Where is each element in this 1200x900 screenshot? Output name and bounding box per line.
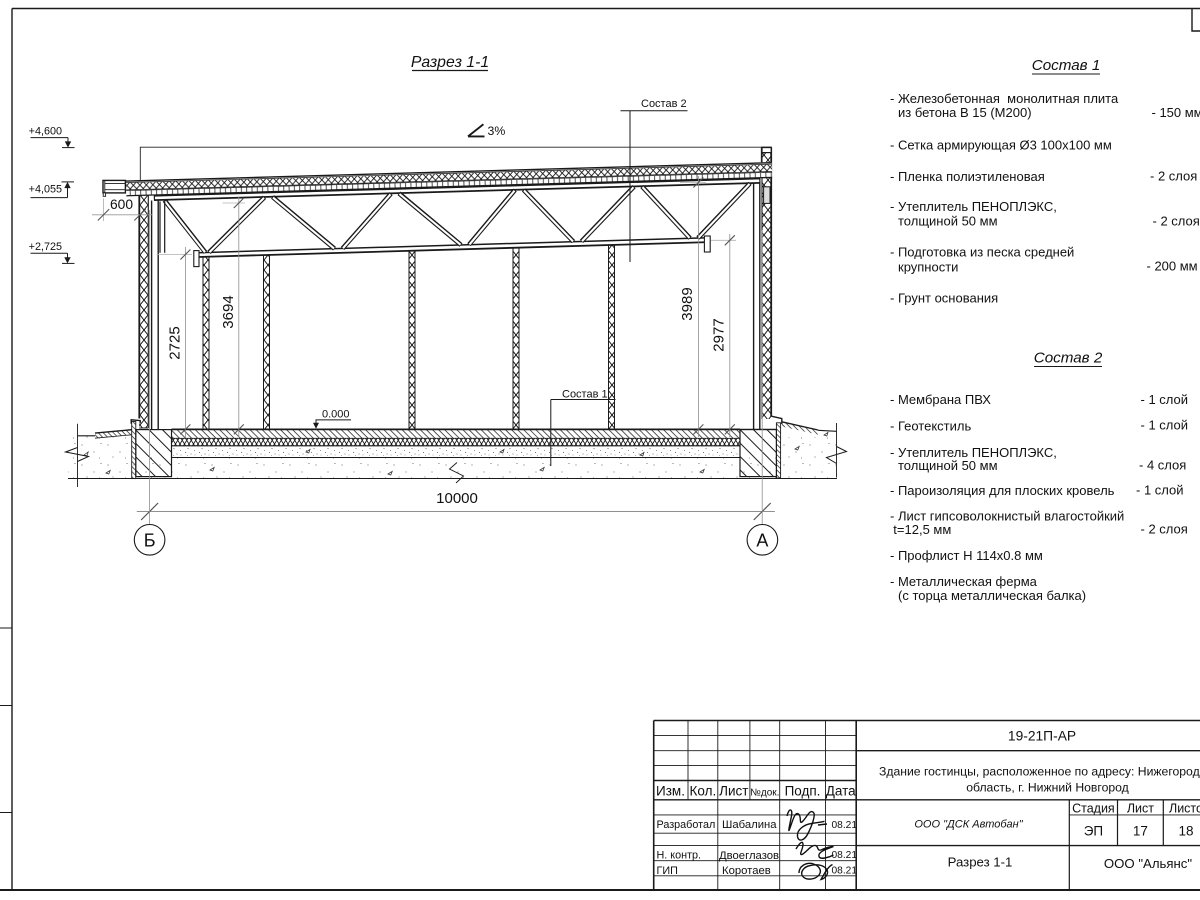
svg-text:t=12,5 мм: t=12,5 мм xyxy=(893,522,951,537)
svg-text:3694: 3694 xyxy=(220,295,237,328)
svg-text:- Железобетонная монолитная п: - Железобетонная монолитная плита xyxy=(890,91,1119,106)
svg-text:- 4 слоя: - 4 слоя xyxy=(1139,458,1186,473)
svg-text:0.000: 0.000 xyxy=(322,409,350,421)
svg-text:19-21П-АР: 19-21П-АР xyxy=(1008,729,1076,744)
svg-text:Состав 1: Состав 1 xyxy=(1032,57,1101,74)
svg-text:08.21: 08.21 xyxy=(832,820,858,831)
svg-text:- Подготовка из песка средней: - Подготовка из песка средней xyxy=(890,245,1074,260)
svg-text:Состав 1: Состав 1 xyxy=(562,388,608,400)
svg-text:ЭП: ЭП xyxy=(1084,824,1103,839)
svg-text:- Утеплитель ПЕНОПЛЭКС,: - Утеплитель ПЕНОПЛЭКС, xyxy=(890,199,1057,214)
svg-text:- 2 слоя: - 2 слоя xyxy=(1153,213,1200,228)
svg-text:- Сетка армирующая Ø3 100х100: - Сетка армирующая Ø3 100х100 мм xyxy=(890,138,1112,153)
svg-text:Разработал: Разработал xyxy=(657,819,716,831)
svg-text:№док.: №док. xyxy=(750,788,779,799)
svg-text:+2,725: +2,725 xyxy=(29,241,62,253)
svg-text:Состав 2: Состав 2 xyxy=(1034,350,1103,367)
svg-text:Листов: Листов xyxy=(1169,801,1200,815)
svg-text:Н. контр.: Н. контр. xyxy=(657,849,702,861)
svg-text:10000: 10000 xyxy=(436,490,478,507)
svg-text:- Пленка полиэтиленовая: - Пленка полиэтиленовая xyxy=(890,169,1045,184)
svg-text:18: 18 xyxy=(1178,824,1193,839)
svg-text:- Мембрана ПВХ: - Мембрана ПВХ xyxy=(890,392,991,407)
svg-text:+4,600: +4,600 xyxy=(29,126,62,138)
svg-text:крупности: крупности xyxy=(898,260,958,275)
svg-text:2977: 2977 xyxy=(711,318,728,351)
svg-text:Изм.: Изм. xyxy=(656,784,685,799)
svg-text:- 1 слой: - 1 слой xyxy=(1141,418,1189,433)
svg-text:Разрез 1-1: Разрез 1-1 xyxy=(948,855,1013,870)
svg-text:(с торца металлическая балка): (с торца металлическая балка) xyxy=(898,588,1086,603)
svg-text:3989: 3989 xyxy=(679,287,696,320)
svg-text:17: 17 xyxy=(1133,824,1148,839)
svg-text:область, г. Нижний Новгород: область, г. Нижний Новгород xyxy=(966,780,1129,794)
svg-text:Лист: Лист xyxy=(1127,801,1154,815)
svg-text:Коротаев: Коротаев xyxy=(722,865,771,877)
svg-text:Здание гостинцы, расположенное: Здание гостинцы, расположенное по адресу… xyxy=(879,764,1200,778)
svg-text:А: А xyxy=(756,531,768,551)
svg-text:3%: 3% xyxy=(488,124,506,138)
svg-text:Шабалина: Шабалина xyxy=(722,819,777,831)
svg-text:Лист: Лист xyxy=(719,784,748,799)
svg-text:- 2 слоя: - 2 слоя xyxy=(1150,169,1197,184)
svg-text:Состав 2: Состав 2 xyxy=(641,98,687,110)
svg-text:Б: Б xyxy=(144,531,156,551)
svg-text:+4,055: +4,055 xyxy=(29,184,62,196)
svg-text:из бетона В 15 (М200): из бетона В 15 (М200) xyxy=(898,105,1032,120)
svg-text:- 200 мм: - 200 мм xyxy=(1147,259,1198,274)
svg-text:ГИП: ГИП xyxy=(657,865,678,877)
svg-text:- Пароизоляция для плоских кро: - Пароизоляция для плоских кровель xyxy=(890,483,1115,498)
svg-text:ООО "ДСК Автобан": ООО "ДСК Автобан" xyxy=(914,819,1023,831)
svg-text:Дата: Дата xyxy=(826,784,856,799)
svg-text:Двоеглазов: Двоеглазов xyxy=(719,850,779,862)
svg-text:толщиной 50 мм: толщиной 50 мм xyxy=(898,213,998,228)
svg-text:ООО "Альянс": ООО "Альянс" xyxy=(1104,856,1192,871)
svg-text:- Металлическая ферма: - Металлическая ферма xyxy=(890,574,1038,589)
svg-text:Кол.: Кол. xyxy=(690,784,717,799)
svg-text:- 2 слоя: - 2 слоя xyxy=(1141,522,1188,537)
svg-text:толщиной 50 мм: толщиной 50 мм xyxy=(898,458,998,473)
svg-text:Разрез 1-1: Разрез 1-1 xyxy=(411,54,489,71)
svg-text:Стадия: Стадия xyxy=(1072,801,1115,815)
svg-text:08.21: 08.21 xyxy=(832,850,858,861)
svg-text:- Грунт основания: - Грунт основания xyxy=(890,291,998,306)
svg-text:- Профлист Н 114х0.8 мм: - Профлист Н 114х0.8 мм xyxy=(890,548,1043,563)
svg-text:Подп.: Подп. xyxy=(785,784,821,799)
svg-text:08.21: 08.21 xyxy=(832,866,858,877)
svg-text:600: 600 xyxy=(110,197,133,212)
svg-text:2725: 2725 xyxy=(167,326,184,359)
svg-text:- 1 слой: - 1 слой xyxy=(1141,392,1189,407)
svg-text:- 1 слой: - 1 слой xyxy=(1136,483,1184,498)
svg-text:- 150 мм: - 150 мм xyxy=(1152,105,1200,120)
svg-text:- Геотекстиль: - Геотекстиль xyxy=(890,419,971,434)
